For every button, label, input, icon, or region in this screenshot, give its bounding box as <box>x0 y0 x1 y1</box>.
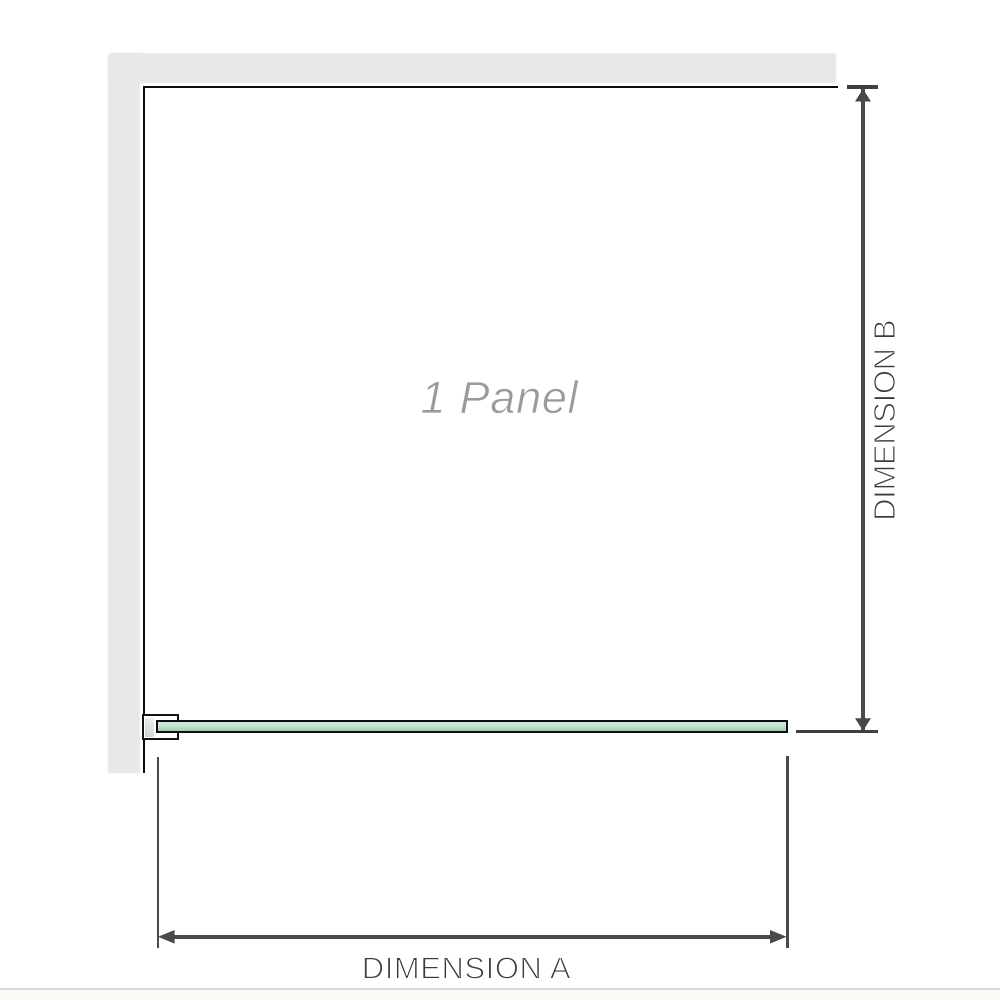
svg-text:DIMENSION B: DIMENSION B <box>867 320 902 521</box>
svg-text:1 Panel: 1 Panel <box>421 372 580 423</box>
svg-text:DIMENSION A: DIMENSION A <box>362 950 571 985</box>
